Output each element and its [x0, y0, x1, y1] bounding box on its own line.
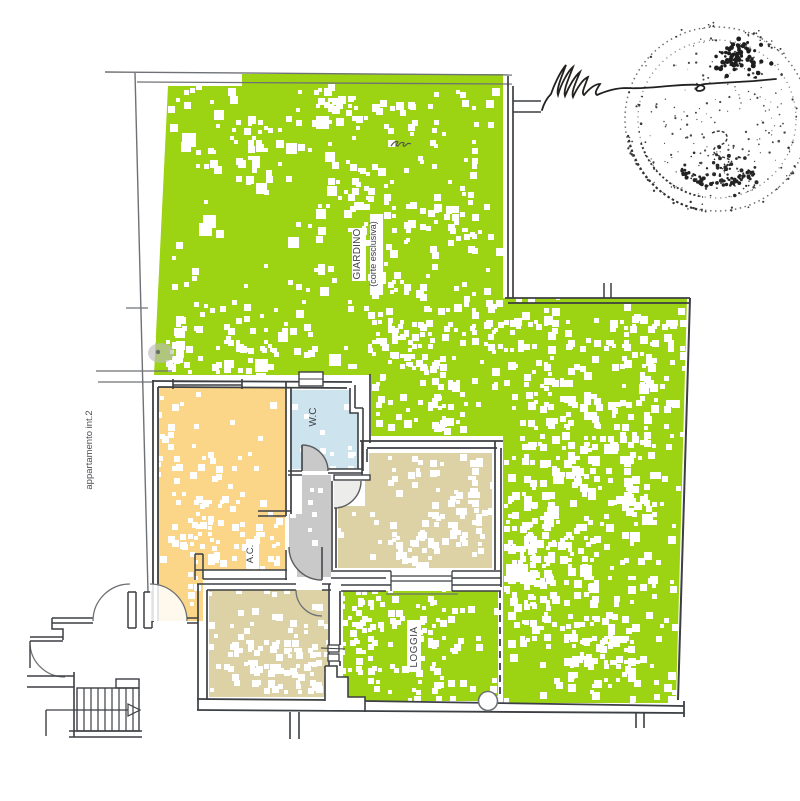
svg-text:(corte esclusiva): (corte esclusiva)	[368, 221, 378, 287]
svg-text:appartamento int.2: appartamento int.2	[84, 410, 95, 489]
svg-text:GIARDINO: GIARDINO	[352, 228, 363, 279]
svg-text:A.C.: A.C.	[245, 545, 256, 563]
svg-text:LOGGIA: LOGGIA	[409, 626, 420, 667]
svg-text:W.C: W.C	[308, 408, 319, 427]
